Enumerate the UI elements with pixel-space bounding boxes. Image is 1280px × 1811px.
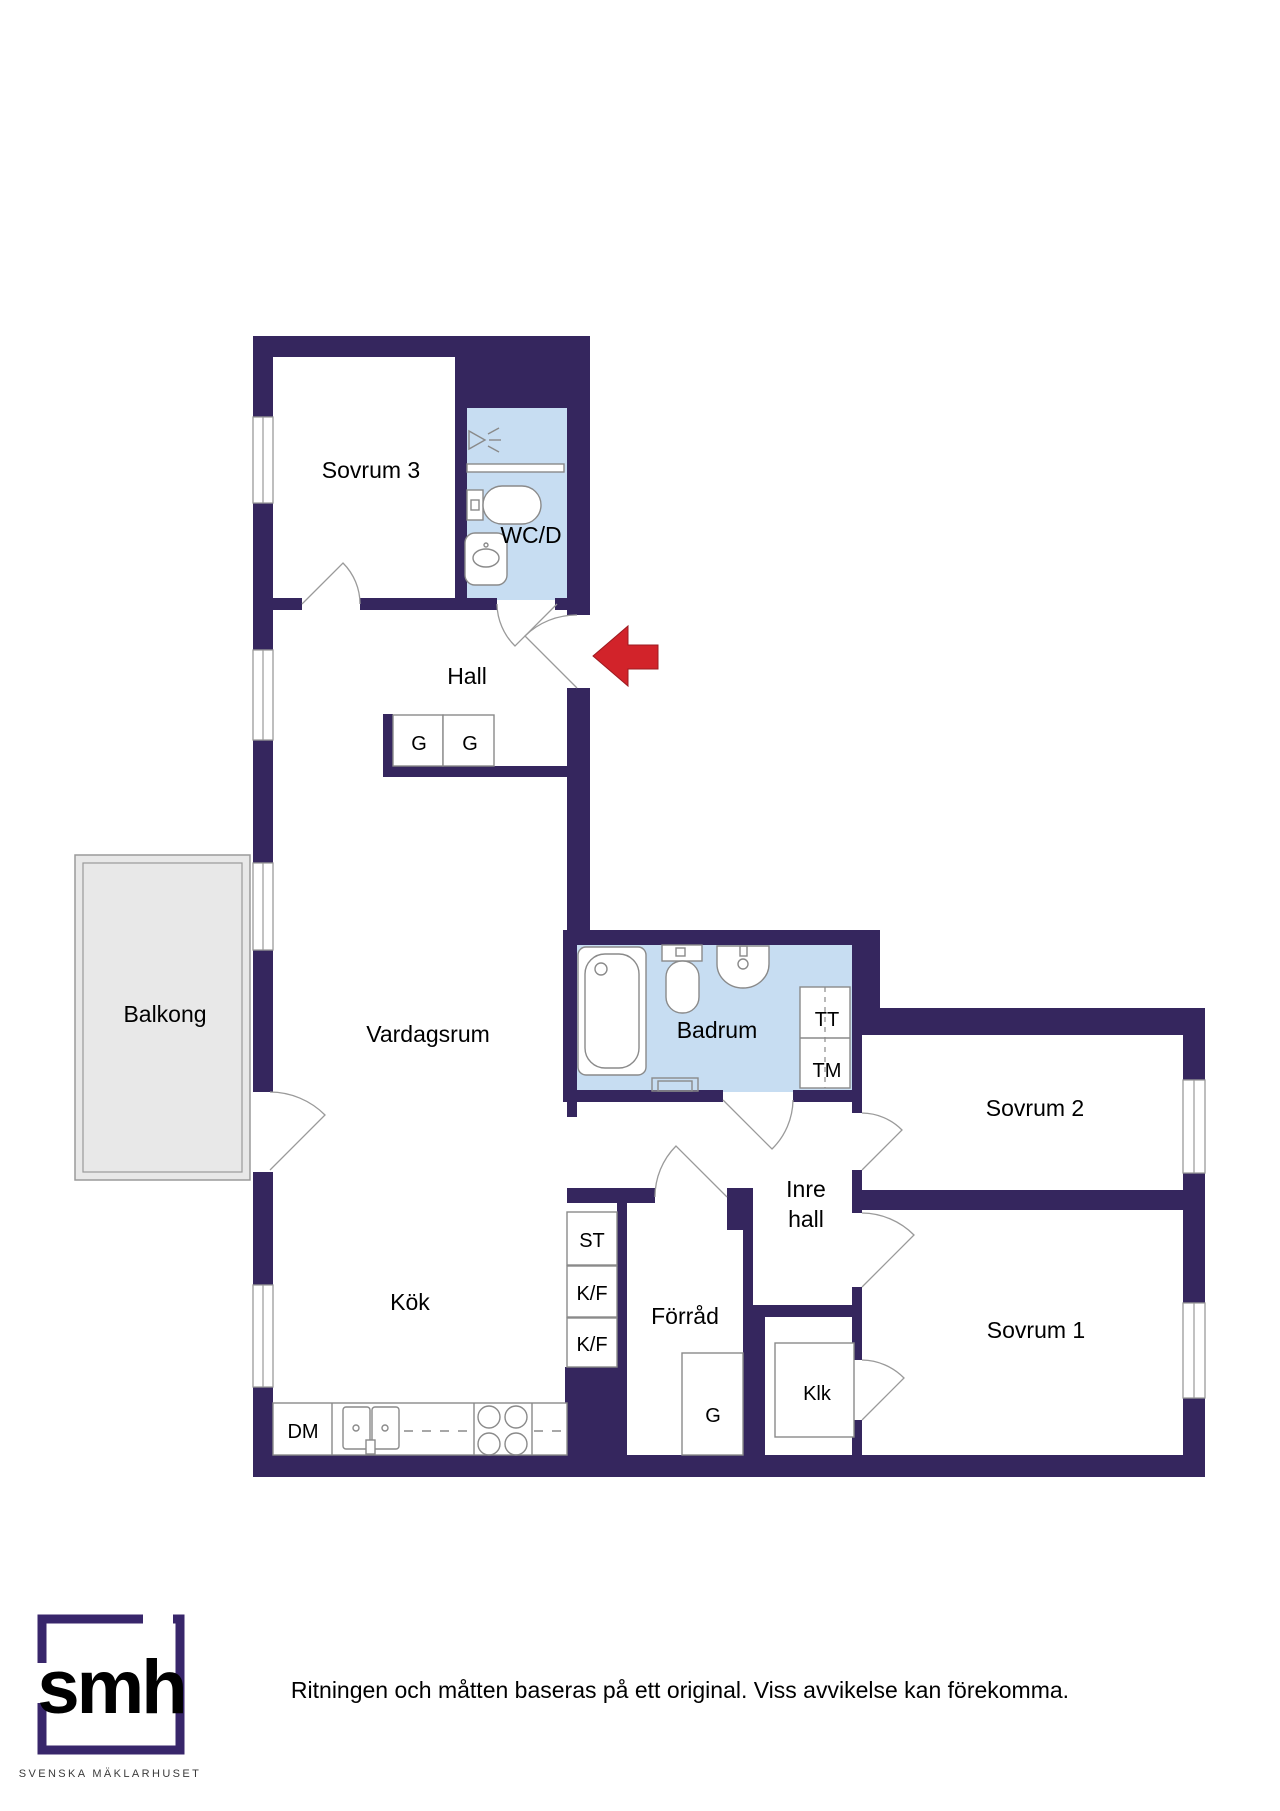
label-kf-lower: K/F — [576, 1334, 607, 1356]
door-klk — [862, 1360, 904, 1420]
label-badrum: Badrum — [677, 1017, 758, 1043]
logo-gap-top — [143, 1611, 173, 1625]
door-sovrum3 — [302, 563, 360, 604]
label-sovrum2: Sovrum 2 — [986, 1095, 1084, 1121]
label-st: ST — [579, 1230, 605, 1252]
floorplan-svg: Sovrum 3 WC/D Hall G G Balkong Vardagsru… — [0, 0, 1280, 1811]
door-sovrum1 — [862, 1213, 914, 1287]
window-sovrum2 — [1183, 1080, 1205, 1173]
window-vardagsrum — [253, 863, 273, 950]
label-inre-hall-2: hall — [788, 1206, 824, 1232]
window-sovrum3 — [253, 417, 273, 503]
label-wardrobe-hall-2: G — [462, 733, 478, 755]
label-wardrobe-hall-1: G — [411, 733, 427, 755]
label-sovrum1: Sovrum 1 — [987, 1317, 1085, 1343]
shelf — [467, 464, 564, 472]
logo-text: smh — [37, 1645, 184, 1730]
disclaimer-text: Ritningen och måtten baseras på ett orig… — [291, 1677, 1069, 1703]
entrance-arrow-icon — [593, 626, 658, 686]
label-wcd: WC/D — [500, 522, 561, 548]
window-sovrum1 — [1183, 1303, 1205, 1398]
label-kf-upper: K/F — [576, 1283, 607, 1305]
label-forrad: Förråd — [651, 1303, 719, 1329]
label-inre-hall-1: Inre — [786, 1176, 826, 1202]
label-vardagsrum: Vardagsrum — [366, 1021, 490, 1047]
label-tt: TT — [815, 1009, 839, 1031]
wardrobe-forrad — [682, 1353, 743, 1455]
door-badrum — [723, 1100, 793, 1149]
door-balkong — [270, 1092, 325, 1170]
door-wcd — [497, 604, 557, 646]
toilet-icon — [662, 945, 702, 1013]
windows — [253, 417, 1205, 1398]
window-kok — [253, 1285, 273, 1387]
label-balkong: Balkong — [123, 1001, 206, 1027]
label-tm: TM — [813, 1060, 842, 1082]
bathtub-icon — [578, 947, 646, 1075]
label-dm: DM — [287, 1421, 318, 1443]
label-sovrum3: Sovrum 3 — [322, 457, 420, 483]
door-forrad — [655, 1146, 727, 1197]
label-kok: Kök — [390, 1289, 430, 1315]
door-sovrum2 — [862, 1113, 902, 1170]
label-wardrobe-forrad: G — [705, 1405, 721, 1427]
window-hall — [253, 650, 273, 740]
sink-icon — [717, 946, 769, 988]
logo-smh: smh SVENSKA MÄKLARHUSET — [19, 1611, 202, 1780]
toilet-icon — [467, 486, 541, 524]
door-entrance — [525, 615, 577, 688]
label-hall: Hall — [447, 663, 487, 689]
logo-subtext: SVENSKA MÄKLARHUSET — [19, 1768, 202, 1780]
label-klk: Klk — [803, 1383, 832, 1405]
kitchen-fixtures — [273, 1212, 617, 1455]
